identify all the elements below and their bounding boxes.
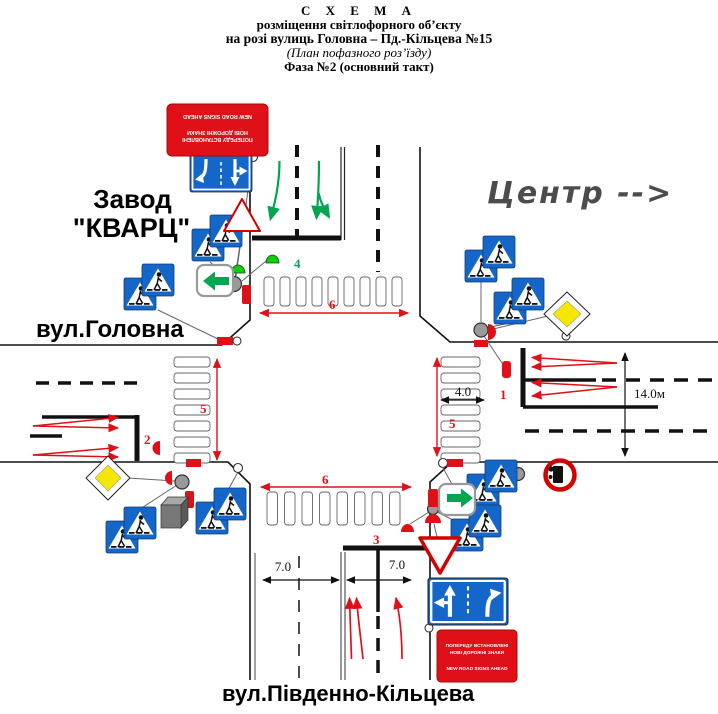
board-text-line1: ПОПЕРЕДУ ВСТАНОВЛЕНІ: [446, 643, 509, 649]
street-label-golovna: вул.Головна: [36, 316, 184, 344]
no-entry-prohibition-sign: [546, 461, 575, 490]
crosswalk-east: [441, 357, 480, 463]
pedestrian-crossing-sign: [512, 278, 544, 310]
pole-ne: [474, 323, 488, 337]
priority-road-sign-ne: [544, 292, 590, 336]
title-line: розміщення світлофорного об’єкту: [0, 18, 718, 32]
dim-lane-left: 7.0: [275, 559, 291, 574]
title-line: (План пофазного роз’їзду): [0, 46, 718, 60]
new-signs-board-top: ПОПЕРЕДУ ВСТАНОВЛЕНІ НОВІ ДОРОЖНІ ЗНАКИ …: [167, 104, 268, 156]
dim-south-6: 6: [322, 472, 329, 487]
green-signal: [266, 255, 279, 263]
pole-sw: [175, 475, 189, 489]
green-arrow-sign-right: [439, 484, 475, 515]
dim-lane-right: 7.0: [389, 557, 405, 572]
board-text-line3: NEW ROAD SIGNS AHEAD: [446, 666, 508, 672]
direction-label-center: Центр -->: [487, 176, 673, 211]
pedestrian-crossing-sign: [142, 264, 174, 296]
controller-cabinet: [161, 497, 188, 528]
title-block: С Х Е М А розміщення світлофорного об’єк…: [0, 4, 718, 74]
signal-group-4: 4: [294, 256, 301, 271]
street-label-pivdenno-kiltseva: вул.Південно-Кільцева: [222, 681, 474, 707]
new-signs-board-bottom: ПОПЕРЕДУ ВСТАНОВЛЕНІ НОВІ ДОРОЖНІ ЗНАКИ …: [437, 630, 517, 682]
flow-arrows-north-group4: [271, 161, 330, 219]
board-text-line2: НОВІ ДОРОЖНІ ЗНАКИ: [187, 129, 248, 135]
signal-group-3: 3: [373, 532, 380, 547]
title-line: С Х Е М А: [0, 4, 718, 18]
dim-road-width: 14.0м: [634, 386, 665, 401]
factory-label-line2: "КВАРЦ": [44, 213, 219, 244]
dim-east-crosswalk-width: 4.0: [455, 384, 471, 399]
pedestrian-crossing-sign: [483, 236, 515, 268]
intersection-diagram: ПОПЕРЕДУ ВСТАНОВЛЕНІ НОВІ ДОРОЖНІ ЗНАКИ …: [0, 0, 718, 714]
dim-east-5: 5: [449, 416, 456, 431]
title-line: на розі вулиць Головна – Пд.-Кільцева №1…: [0, 32, 718, 46]
title-line: Фаза №2 (основний такт): [0, 60, 718, 74]
traffic-scheme-page: ПОПЕРЕДУ ВСТАНОВЛЕНІ НОВІ ДОРОЖНІ ЗНАКИ …: [0, 0, 718, 714]
board-text-line2: НОВІ ДОРОЖНІ ЗНАКИ: [450, 650, 505, 656]
board-text-line3: NEW ROAD SIGNS AHEAD: [183, 113, 252, 119]
green-arrow-sign-left: [197, 265, 233, 296]
lane-direction-sign-south: [428, 578, 508, 625]
pedestrian-crossing-sign: [214, 488, 246, 520]
board-text-line1: ПОПЕРЕДУ ВСТАНОВЛЕНІ: [182, 136, 253, 142]
flow-arrows-east-group1: [532, 358, 617, 397]
signal-group-2: 2: [144, 432, 151, 447]
crosswalk-south: [267, 492, 400, 525]
pedestrian-crossing-sign: [485, 460, 517, 492]
pedestrian-crossing-sign: [124, 507, 156, 539]
flow-arrows-south-group3: [350, 598, 403, 659]
yield-sign: [420, 538, 460, 573]
dim-west-5: 5: [200, 401, 207, 416]
signal-group-1: 1: [500, 387, 507, 402]
dim-north-6: 6: [329, 297, 336, 312]
factory-label-line1: Завод: [60, 184, 205, 215]
